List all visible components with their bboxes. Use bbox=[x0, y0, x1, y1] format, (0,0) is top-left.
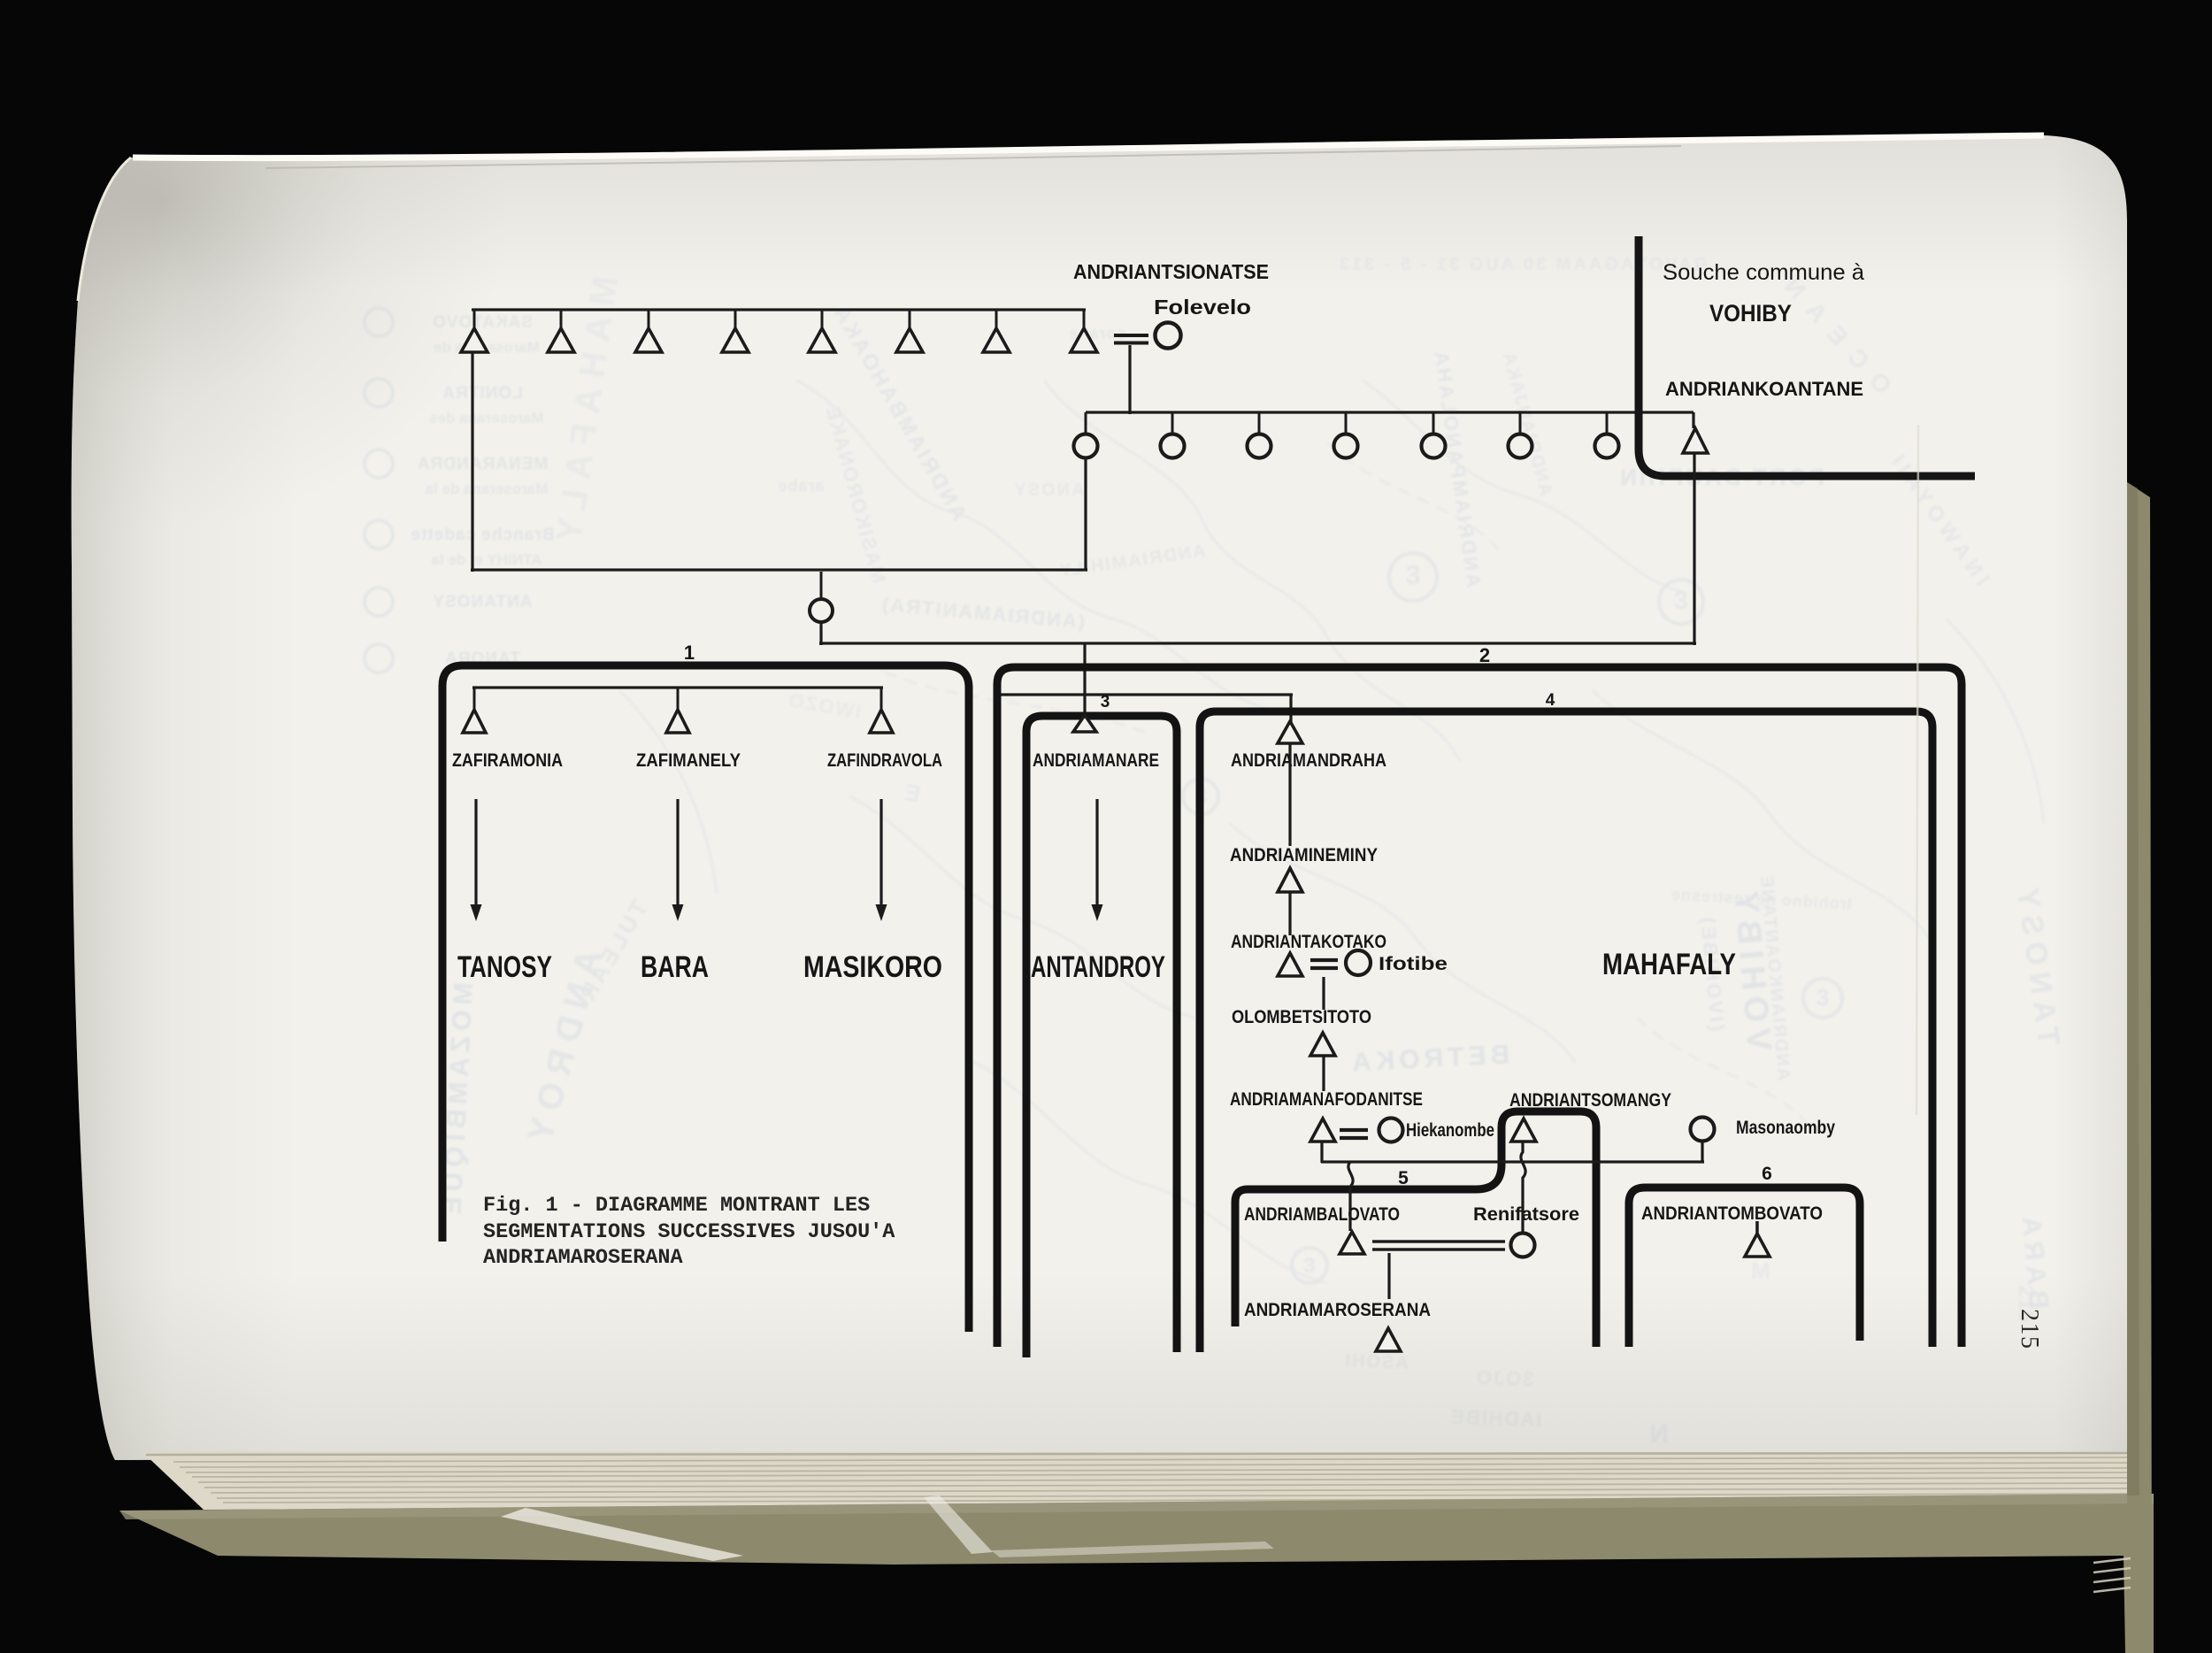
svg-text:TANOSY: TANOSY bbox=[457, 950, 552, 984]
svg-text:ZAFIRAMONIA: ZAFIRAMONIA bbox=[452, 750, 563, 771]
svg-text:RAVOYAGAAM 30 AUG 31 - 5 - 313: RAVOYAGAAM 30 AUG 31 - 5 - 313 bbox=[1337, 255, 1707, 274]
svg-text:Hiekanombe: Hiekanombe bbox=[1406, 1120, 1494, 1141]
svg-text:ANDRIAMBALOVATO: ANDRIAMBALOVATO bbox=[1244, 1204, 1400, 1225]
svg-text:ATNIHY et de la: ATNIHY et de la bbox=[431, 551, 542, 568]
svg-text:Maroserana de la: Maroserana de la bbox=[425, 481, 548, 497]
svg-text:ANTANOSY: ANTANOSY bbox=[432, 593, 532, 611]
svg-text:ANDRIAMANDRAHA: ANDRIAMANDRAHA bbox=[1231, 750, 1386, 771]
svg-text:ANOSY: ANOSY bbox=[1012, 481, 1084, 500]
svg-text:Fig. 1 - DIAGRAMME MONTRANT LE: Fig. 1 - DIAGRAMME MONTRANT LES bbox=[483, 1194, 870, 1218]
svg-text:3: 3 bbox=[1303, 1254, 1315, 1278]
svg-text:215: 215 bbox=[2016, 1309, 2043, 1350]
svg-text:2: 2 bbox=[1479, 644, 1490, 666]
svg-text:Branche cadette: Branche cadette bbox=[411, 526, 555, 544]
svg-text:6: 6 bbox=[1762, 1164, 1772, 1184]
svg-text:M: M bbox=[1751, 1257, 1770, 1284]
svg-text:Souche commune à: Souche commune à bbox=[1663, 260, 1864, 285]
svg-text:MAHAFALY: MAHAFALY bbox=[1602, 948, 1736, 981]
svg-text:3OJO: 3OJO bbox=[1474, 1366, 1534, 1390]
svg-text:ASOHI: ASOHI bbox=[1343, 1351, 1409, 1373]
svg-text:ANDRIAMANAFODANITSE: ANDRIAMANAFODANITSE bbox=[1230, 1089, 1423, 1110]
svg-text:BARA: BARA bbox=[641, 950, 709, 984]
svg-text:SAKATOVO: SAKATOVO bbox=[432, 313, 533, 332]
svg-text:3: 3 bbox=[1101, 693, 1110, 711]
svg-text:ANDRIANTSIONATSE: ANDRIANTSIONATSE bbox=[1073, 260, 1269, 283]
svg-text:Ifotibe: Ifotibe bbox=[1379, 954, 1448, 974]
svg-text:3: 3 bbox=[1816, 984, 1829, 1011]
svg-text:ANDRIANTAKOTAKO: ANDRIANTAKOTAKO bbox=[1231, 932, 1386, 952]
svg-text:VOHIBY: VOHIBY bbox=[1709, 300, 1792, 327]
svg-text:OLOMBETSITOTO: OLOMBETSITOTO bbox=[1232, 1007, 1371, 1027]
svg-text:ANDRIAMAROSERANA: ANDRIAMAROSERANA bbox=[1244, 1300, 1431, 1320]
svg-text:ANDRIAMINEMINY: ANDRIAMINEMINY bbox=[1230, 845, 1378, 865]
svg-text:1: 1 bbox=[684, 642, 695, 664]
svg-text:5: 5 bbox=[1398, 1168, 1409, 1188]
svg-text:ANDRIAMAROSERANA: ANDRIAMAROSERANA bbox=[483, 1246, 684, 1270]
svg-text:Maroserana des: Maroserana des bbox=[429, 410, 543, 427]
svg-text:IADHIBE: IADHIBE bbox=[1449, 1405, 1542, 1431]
svg-text:ZAFIMANELY: ZAFIMANELY bbox=[636, 750, 741, 771]
svg-text:ANDRIANKOANTANE: ANDRIANKOANTANE bbox=[1665, 378, 1863, 400]
svg-text:MENARANDRA: MENARANDRA bbox=[417, 455, 548, 473]
svg-text:Masonaomby: Masonaomby bbox=[1736, 1118, 1835, 1138]
svg-text:Renifatsore: Renifatsore bbox=[1473, 1204, 1579, 1225]
svg-text:ANTANDROY: ANTANDROY bbox=[1031, 950, 1165, 984]
svg-text:3: 3 bbox=[1405, 559, 1420, 590]
svg-text:ZAFINDRAVOLA: ZAFINDRAVOLA bbox=[827, 750, 942, 771]
svg-text:SEGMENTATIONS SUCCESSIVES JUSO: SEGMENTATIONS SUCCESSIVES JUSOU'A bbox=[483, 1220, 895, 1244]
svg-text:ANDRIAMANARE: ANDRIAMANARE bbox=[1033, 750, 1159, 771]
svg-text:4: 4 bbox=[1546, 691, 1555, 710]
svg-text:arabe: arabe bbox=[777, 477, 824, 495]
svg-text:LONITRA: LONITRA bbox=[442, 384, 522, 403]
svg-text:N: N bbox=[1649, 1419, 1669, 1449]
svg-text:Folevelo: Folevelo bbox=[1154, 296, 1251, 319]
svg-text:ANDRIANTOMBOVATO: ANDRIANTOMBOVATO bbox=[1641, 1203, 1823, 1224]
svg-text:MASIKORO: MASIKORO bbox=[803, 950, 942, 984]
